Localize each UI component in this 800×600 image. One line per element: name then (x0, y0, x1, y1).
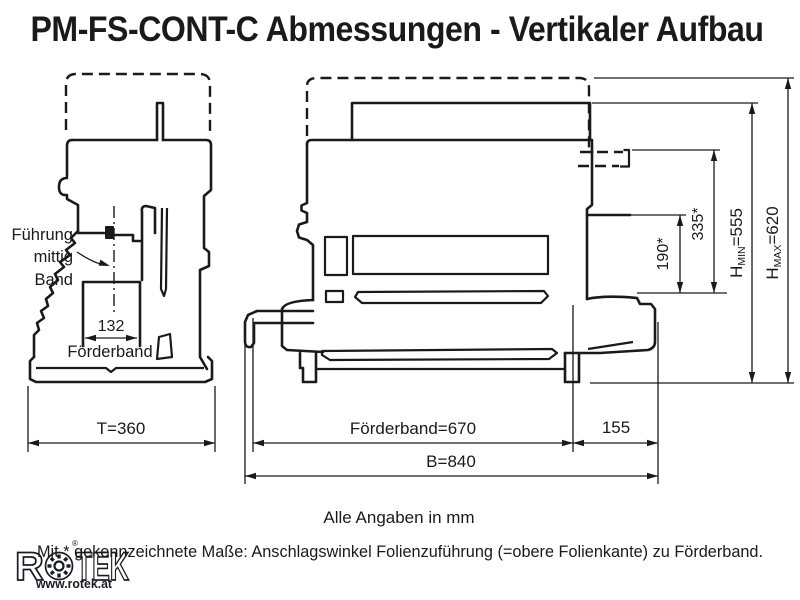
front-conveyor-left (282, 300, 323, 352)
dim-hmin-label: HMIN=555 (727, 208, 748, 278)
dimension-190: 190* (630, 215, 727, 293)
diagram-page: PM-FS-CONT-C Abmessungen - Vertikaler Au… (0, 0, 800, 600)
front-seal-bar (353, 236, 548, 274)
dimension-T360: T=360 (28, 386, 215, 452)
front-bracket-dashed (578, 152, 623, 166)
dimension-335: 335* (632, 150, 720, 293)
side-column (142, 206, 155, 280)
dim-foerderband-label: Förderband=670 (350, 419, 476, 438)
page-title: PM-FS-CONT-C Abmessungen - Vertikaler Au… (31, 10, 764, 49)
dim-T-label: T=360 (97, 419, 146, 438)
front-left-stub (245, 311, 313, 347)
note-asterisk: Mit * gekennzeichnete Maße: Anschlagswin… (37, 542, 763, 561)
side-base-top (36, 368, 204, 372)
side-column-strip (161, 208, 167, 296)
side-raised-position-dashed (66, 74, 210, 136)
front-seal-block (325, 237, 347, 275)
dimension-foerderband-670: Förderband=670 (253, 305, 573, 452)
logo-registered-mark: ® (72, 539, 78, 548)
dim-B-label: B=840 (426, 452, 476, 471)
front-lower-strip (355, 291, 548, 303)
front-right-foot (565, 353, 579, 382)
dim-155-label: 155 (602, 418, 630, 437)
dim-190-label: 190* (655, 238, 672, 271)
leader-arrowhead (99, 260, 111, 266)
front-raised-position-dashed (307, 78, 589, 148)
side-guide-clamp (105, 226, 114, 239)
dim-335-label: 335* (690, 208, 707, 241)
dim-hmax-label: HMAX=620 (763, 206, 784, 279)
side-head-left (59, 140, 78, 231)
dimension-132: 132 (85, 318, 137, 341)
front-body-left (297, 144, 313, 300)
dimension-hmin: HMIN=555 (592, 103, 758, 383)
front-seal-arm (352, 103, 590, 140)
leader-fuehrung: Führung mittig Band (12, 226, 110, 289)
gear-icon (48, 555, 71, 578)
dimension-B840: B=840 (245, 333, 658, 484)
logo-url: www.rotek.at (35, 577, 113, 591)
side-foerderband-label: Förderband (67, 343, 152, 361)
front-lower-block (326, 291, 343, 302)
side-bracket-piece (157, 334, 172, 359)
front-outfeed-roller (588, 342, 633, 349)
leader-arrow-line (77, 252, 101, 264)
front-left-foot (300, 353, 316, 382)
technical-drawing: PM-FS-CONT-C Abmessungen - Vertikaler Au… (0, 0, 800, 600)
leader-line2: mittig (34, 248, 73, 266)
dimension-155: 155 (573, 322, 658, 484)
front-body (307, 140, 592, 299)
side-head-tab (157, 103, 163, 140)
note-units: Alle Angaben in mm (323, 508, 474, 527)
leader-line1: Führung (12, 226, 73, 244)
front-belt-strip (322, 349, 557, 360)
rotek-logo: R TEK ® www.rotek.at (15, 539, 129, 591)
front-view (245, 78, 655, 382)
leader-line3: Band (34, 271, 73, 289)
dim-132-label: 132 (98, 318, 125, 335)
